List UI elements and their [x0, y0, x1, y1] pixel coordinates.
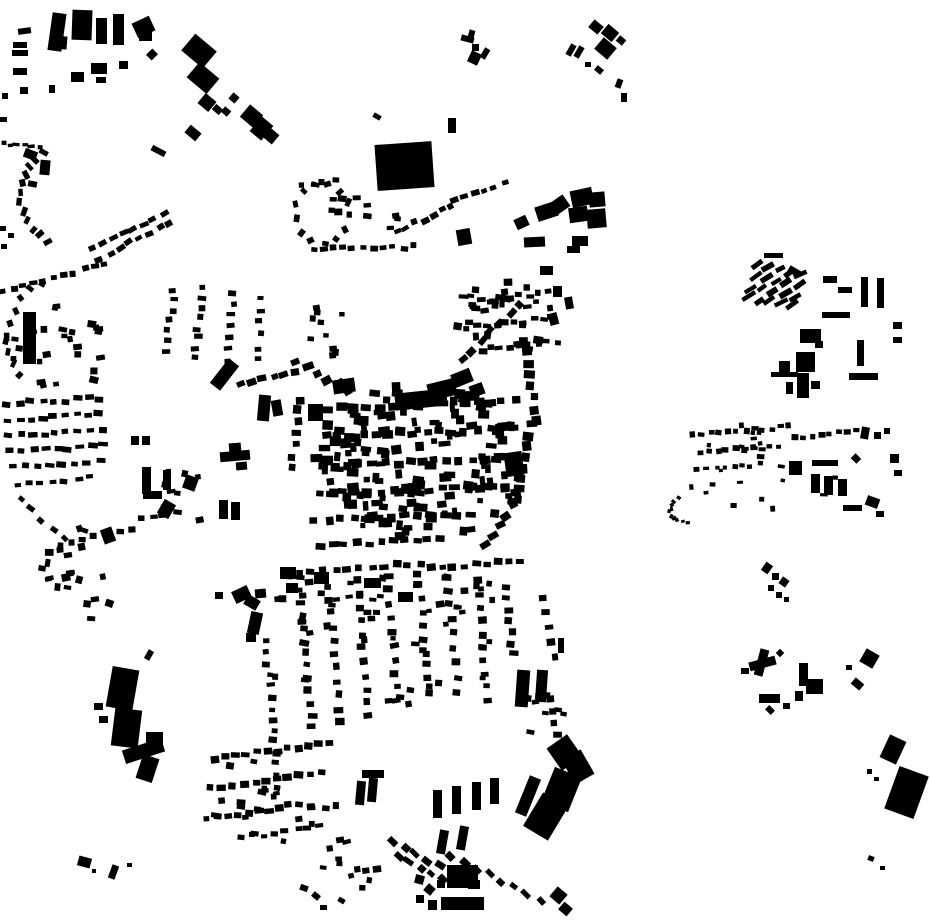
building-footprint — [433, 790, 442, 818]
building-footprint — [332, 177, 339, 182]
building-footprint — [324, 597, 332, 604]
building-footprint — [150, 514, 158, 519]
building-footprint — [775, 265, 786, 274]
building-footprint — [195, 516, 204, 524]
building-footprint — [25, 397, 34, 404]
building-footprint — [100, 526, 116, 544]
building-footprint — [16, 294, 24, 302]
building-footprint — [339, 438, 351, 449]
building-footprint — [545, 624, 554, 630]
building-footprint — [542, 339, 549, 344]
building-footprint — [322, 241, 329, 247]
building-footprint — [472, 44, 479, 51]
building-footprint — [410, 242, 416, 248]
building-footprint — [88, 442, 98, 448]
building-footprint — [363, 610, 371, 616]
building-footprint — [255, 347, 262, 352]
building-footprint — [419, 622, 427, 629]
building-footprint — [315, 543, 325, 550]
building-footprint — [226, 323, 234, 329]
building-footprint — [352, 538, 362, 546]
building-footprint — [750, 431, 755, 436]
building-footprint — [456, 825, 469, 850]
building-footprint — [437, 880, 445, 888]
building-footprint — [360, 523, 365, 528]
building-footprint — [401, 225, 410, 233]
building-footprint — [308, 713, 318, 719]
building-footprint — [504, 278, 513, 285]
building-footprint — [17, 448, 24, 454]
building-footprint — [261, 834, 267, 838]
building-footprint — [393, 560, 402, 568]
building-footprint — [489, 483, 498, 490]
building-footprint — [440, 512, 451, 518]
building-footprint — [621, 93, 627, 102]
building-footprint — [373, 610, 380, 615]
building-footprint — [486, 443, 497, 449]
building-footprint — [450, 397, 458, 406]
building-footprint — [4, 419, 12, 424]
building-footprint — [460, 400, 471, 407]
building-footprint — [74, 351, 81, 357]
building-footprint — [391, 697, 400, 704]
building-footprint — [529, 406, 539, 416]
building-footprint — [254, 808, 264, 814]
building-footprint — [513, 484, 524, 492]
building-footprint — [867, 855, 874, 862]
building-footprint — [428, 900, 437, 910]
building-footprint — [271, 399, 284, 416]
building-footprint — [335, 188, 344, 197]
building-footprint — [5, 348, 11, 356]
building-footprint — [381, 458, 389, 466]
building-footprint — [524, 370, 536, 379]
building-footprint — [458, 354, 469, 364]
building-footprint — [555, 340, 561, 345]
building-footprint — [549, 708, 556, 715]
building-footprint — [83, 600, 91, 608]
building-footprint — [4, 432, 13, 438]
building-footprint — [351, 514, 359, 521]
building-footprint — [531, 393, 538, 400]
building-footprint — [89, 376, 99, 385]
building-footprint — [413, 581, 422, 588]
building-footprint — [483, 562, 490, 567]
building-footprint — [173, 509, 182, 515]
building-footprint — [437, 500, 447, 508]
building-footprint — [505, 558, 512, 564]
building-footprint — [366, 877, 372, 884]
building-footprint — [766, 444, 772, 448]
building-footprint — [741, 448, 747, 453]
building-footprint — [206, 784, 213, 791]
building-footprint — [4, 333, 10, 341]
building-footprint — [519, 320, 527, 326]
building-footprint — [539, 595, 547, 602]
building-footprint — [302, 648, 309, 656]
building-footprint — [377, 594, 384, 599]
building-footprint — [261, 778, 270, 785]
building-footprint — [409, 848, 420, 859]
building-footprint — [880, 866, 885, 870]
building-footprint — [413, 538, 422, 544]
building-footprint — [452, 658, 461, 665]
building-footprint — [86, 474, 93, 479]
building-footprint — [459, 193, 468, 200]
building-footprint — [256, 374, 267, 382]
building-footprint — [339, 312, 344, 317]
building-footprint — [526, 729, 535, 735]
building-footprint — [547, 305, 553, 312]
building-footprint — [505, 493, 512, 498]
building-footprint — [61, 413, 69, 418]
building-footprint — [325, 740, 333, 746]
building-footprint — [759, 427, 765, 433]
building-footprint — [41, 326, 48, 333]
building-footprint — [485, 868, 495, 878]
building-footprint — [398, 592, 413, 602]
building-footprint — [99, 427, 107, 433]
building-footprint — [18, 431, 25, 437]
building-footprint — [330, 197, 337, 202]
building-footprint — [35, 229, 45, 239]
building-footprint — [61, 428, 68, 434]
building-footprint — [1, 244, 7, 249]
building-footprint — [216, 785, 225, 792]
building-footprint — [363, 698, 370, 706]
building-footprint — [379, 564, 389, 570]
building-footprint — [703, 491, 708, 495]
building-footprint — [479, 348, 488, 354]
building-footprint — [444, 491, 455, 499]
building-footprint — [364, 477, 370, 483]
building-footprint — [450, 629, 458, 636]
building-footprint — [459, 527, 467, 536]
building-footprint — [99, 573, 106, 580]
building-footprint — [88, 244, 96, 252]
building-footprint — [339, 244, 346, 249]
building-footprint — [306, 568, 315, 574]
building-footprint — [769, 427, 775, 432]
building-footprint — [414, 874, 425, 885]
building-footprint — [811, 381, 820, 389]
building-footprint — [210, 755, 219, 763]
building-footprint — [67, 336, 73, 343]
building-footprint — [365, 542, 374, 548]
building-footprint — [164, 327, 170, 333]
building-footprint — [269, 717, 278, 723]
building-footprint — [199, 285, 205, 290]
building-footprint — [50, 399, 57, 405]
building-footprint — [194, 334, 203, 339]
building-footprint — [522, 432, 533, 442]
building-footprint — [61, 399, 69, 405]
building-footprint — [26, 504, 36, 513]
building-footprint — [144, 649, 154, 661]
building-footprint — [314, 572, 329, 584]
building-footprint — [487, 399, 497, 407]
building-footprint — [846, 665, 852, 670]
building-footprint — [360, 404, 371, 411]
building-footprint — [502, 595, 510, 601]
building-footprint — [146, 48, 158, 60]
building-footprint — [156, 222, 165, 231]
building-footprint — [406, 457, 417, 465]
building-footprint — [509, 650, 519, 656]
building-footprint — [572, 236, 588, 246]
building-footprint — [564, 296, 574, 309]
building-footprint — [893, 337, 902, 343]
building-footprint — [347, 403, 359, 410]
building-footprint — [723, 466, 727, 470]
building-footprint — [489, 597, 495, 603]
building-footprint — [552, 653, 559, 661]
building-footprint — [150, 145, 166, 157]
building-footprint — [8, 233, 14, 238]
building-footprint — [478, 410, 489, 419]
building-footprint — [60, 272, 68, 279]
building-footprint — [383, 585, 393, 592]
building-footprint — [42, 351, 51, 359]
building-footprint — [91, 263, 100, 269]
building-footprint — [445, 600, 453, 607]
building-footprint — [758, 461, 763, 466]
building-footprint — [237, 834, 245, 840]
building-footprint — [77, 542, 86, 551]
building-footprint — [449, 645, 456, 652]
building-footprint — [360, 430, 368, 438]
building-footprint — [737, 481, 743, 484]
building-footprint — [369, 389, 380, 397]
building-footprint — [335, 718, 345, 726]
building-footprint — [224, 813, 232, 819]
building-footprint — [164, 219, 173, 228]
building-footprint — [815, 341, 823, 348]
building-footprint — [392, 382, 401, 391]
building-footprint — [465, 485, 473, 493]
building-footprint — [330, 638, 338, 644]
building-footprint — [778, 464, 785, 468]
building-footprint — [9, 464, 17, 469]
building-footprint — [836, 429, 842, 434]
building-footprint — [420, 610, 427, 615]
building-footprint — [255, 589, 267, 599]
building-footprint — [379, 503, 388, 510]
building-footprint — [509, 628, 516, 635]
building-footprint — [294, 417, 302, 425]
building-footprint — [402, 527, 410, 536]
building-footprint — [109, 234, 119, 242]
building-footprint — [11, 286, 19, 293]
building-footprint — [308, 805, 316, 810]
building-footprint — [362, 867, 370, 874]
building-footprint — [410, 218, 418, 226]
building-footprint — [358, 617, 365, 623]
building-footprint — [489, 184, 497, 191]
building-footprint — [147, 215, 156, 223]
building-footprint — [721, 447, 728, 452]
building-footprint — [375, 404, 386, 412]
building-footprint — [495, 294, 504, 301]
building-footprint — [219, 500, 228, 519]
building-footprint — [504, 607, 513, 613]
building-footprint — [456, 415, 464, 424]
building-footprint — [362, 674, 369, 680]
building-footprint — [877, 278, 884, 308]
building-footprint — [477, 605, 484, 611]
building-footprint — [318, 590, 325, 596]
building-footprint — [791, 434, 798, 440]
building-footprint — [304, 742, 313, 750]
building-footprint — [350, 412, 361, 418]
building-footprint — [58, 542, 64, 548]
building-footprint — [319, 445, 330, 451]
building-footprint — [255, 318, 262, 323]
building-footprint — [506, 345, 514, 351]
building-footprint — [776, 592, 782, 598]
building-footprint — [759, 447, 766, 451]
building-footprint — [383, 396, 391, 403]
building-footprint — [303, 825, 312, 830]
building-footprint — [308, 404, 323, 421]
building-footprint — [369, 565, 377, 571]
building-footprint — [463, 326, 469, 331]
building-footprint — [226, 312, 235, 316]
building-footprint — [311, 247, 317, 252]
building-footprint — [389, 642, 399, 649]
building-footprint — [17, 418, 25, 422]
building-footprint — [483, 698, 492, 704]
building-footprint — [387, 514, 396, 523]
building-footprint — [494, 345, 503, 350]
building-footprint — [715, 430, 722, 436]
building-footprint — [66, 570, 74, 577]
building-footprint — [116, 529, 124, 535]
building-footprint — [187, 62, 220, 94]
building-footprint — [41, 446, 50, 451]
building-footprint — [503, 451, 524, 477]
building-footprint — [258, 330, 264, 336]
building-footprint — [363, 203, 371, 208]
building-footprint — [363, 712, 372, 719]
building-footprint — [751, 426, 758, 431]
building-footprint — [22, 170, 31, 180]
building-footprint — [435, 535, 444, 542]
building-footprint — [326, 491, 335, 498]
building-footprint — [395, 469, 402, 478]
building-footprint — [228, 290, 236, 296]
building-footprint — [454, 457, 462, 466]
building-footprint — [542, 711, 549, 716]
building-footprint — [333, 707, 343, 713]
building-footprint — [310, 454, 322, 462]
building-footprint — [880, 734, 907, 764]
building-footprint — [386, 411, 396, 421]
building-footprint — [36, 481, 43, 485]
building-footprint — [329, 541, 339, 547]
building-footprint — [585, 62, 591, 67]
building-footprint — [417, 561, 425, 568]
building-footprint — [28, 417, 35, 423]
building-footprint — [452, 689, 460, 696]
building-footprint — [390, 636, 395, 641]
building-footprint — [445, 429, 456, 436]
building-footprint — [90, 533, 97, 539]
building-footprint — [479, 632, 487, 639]
building-footprint — [15, 371, 24, 380]
building-footprint — [379, 538, 386, 545]
building-footprint — [372, 865, 381, 873]
building-footprint — [806, 679, 823, 694]
building-footprint — [473, 333, 479, 341]
building-footprint — [832, 475, 838, 479]
building-footprint — [22, 143, 28, 146]
building-footprint — [6, 319, 14, 327]
building-footprint — [387, 226, 395, 231]
building-footprint — [362, 770, 384, 778]
building-footprint — [306, 701, 314, 707]
building-footprint — [71, 72, 84, 82]
building-footprint — [385, 601, 392, 608]
building-footprint — [535, 290, 541, 296]
building-footprint — [826, 432, 831, 437]
building-footprint — [280, 828, 288, 833]
building-footprint — [477, 498, 483, 504]
building-footprint — [335, 856, 342, 861]
building-footprint — [400, 536, 409, 543]
building-footprint — [20, 206, 28, 217]
building-footprint — [51, 430, 58, 436]
building-footprint — [824, 476, 833, 495]
building-footprint — [715, 466, 719, 470]
building-footprint — [800, 436, 806, 441]
building-footprint — [400, 487, 411, 494]
building-footprint — [367, 616, 375, 622]
building-footprint — [392, 657, 400, 664]
building-footprint — [709, 430, 715, 435]
building-footprint — [894, 470, 902, 476]
building-footprint — [191, 346, 199, 352]
building-footprint — [364, 578, 381, 588]
building-footprint — [770, 506, 775, 512]
building-footprint — [499, 511, 512, 523]
building-footprint — [407, 430, 417, 438]
building-footprint — [477, 297, 486, 302]
building-footprint — [420, 216, 430, 225]
building-footprint — [394, 684, 401, 689]
building-footprint — [131, 436, 139, 445]
building-footprint — [759, 694, 780, 703]
building-footprint — [29, 226, 38, 235]
building-footprint — [335, 690, 342, 698]
building-footprint — [303, 686, 311, 694]
building-footprint — [418, 595, 425, 601]
building-footprint — [447, 563, 456, 571]
building-footprint — [144, 230, 154, 238]
building-footprint — [253, 748, 261, 753]
building-footprint — [271, 760, 279, 765]
building-footprint — [139, 221, 149, 229]
building-footprint — [249, 832, 255, 837]
building-footprint — [53, 303, 61, 309]
building-footprint — [698, 450, 704, 455]
building-footprint — [324, 584, 331, 590]
building-footprint — [725, 428, 732, 434]
building-footprint — [11, 336, 19, 341]
building-footprint — [524, 284, 530, 290]
building-footprint — [336, 402, 347, 411]
building-footprint — [747, 464, 752, 469]
